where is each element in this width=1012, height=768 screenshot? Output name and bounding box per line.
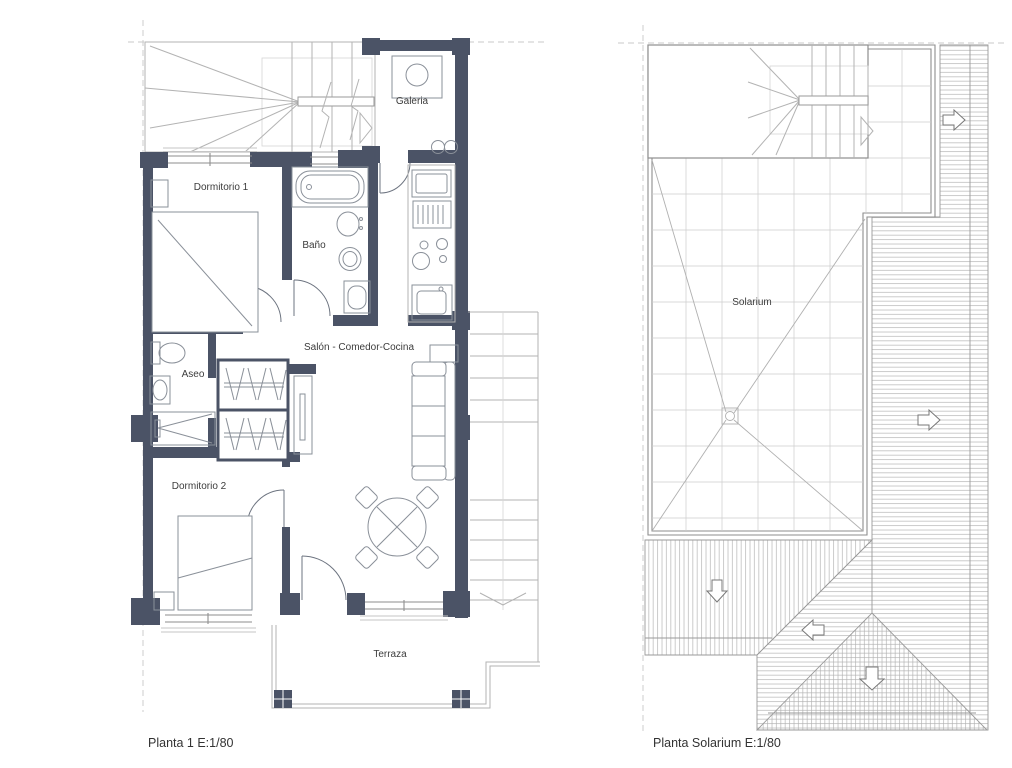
- hob: [413, 239, 448, 270]
- solarium-stairs: [648, 45, 873, 158]
- bed-dormitorio1: [151, 180, 258, 332]
- bidet: [337, 212, 359, 236]
- label-dormitorio2: Dormitorio 2: [172, 481, 227, 492]
- label-solarium: Solarium: [732, 297, 771, 308]
- aseo-fixtures: [150, 342, 215, 445]
- label-dormitorio1: Dormitorio 1: [194, 182, 249, 193]
- label-galeria: Galeria: [396, 96, 429, 107]
- oven: [413, 201, 451, 228]
- glass-partition: [294, 376, 312, 454]
- terrace: [272, 625, 540, 708]
- exterior-stairs: [468, 312, 538, 662]
- nightstand: [151, 180, 168, 207]
- plan-solarium: Solarium Planta Solarium E:1/80: [645, 45, 988, 750]
- bed-dormitorio2: [154, 516, 252, 610]
- toilet: [339, 248, 361, 271]
- aseo-toilet: [159, 343, 185, 363]
- washing-machine: [392, 56, 442, 98]
- terrace-pillar: [452, 690, 470, 708]
- dining-set: [354, 485, 439, 569]
- terrace-pillar: [274, 690, 292, 708]
- label-aseo: Aseo: [182, 369, 205, 380]
- floor-plan-svg: Galeria Dormitorio 1 Baño Aseo Salón - C…: [0, 0, 1012, 768]
- label-terraza: Terraza: [373, 649, 407, 660]
- drain-slopes: [652, 160, 865, 531]
- caption-planta1: Planta 1 E:1/80: [148, 736, 234, 750]
- label-bano: Baño: [302, 240, 326, 251]
- sofa: [412, 362, 455, 480]
- kitchen-fixtures: [408, 165, 455, 322]
- label-salon: Salón - Comedor-Cocina: [304, 342, 414, 353]
- side-table: [430, 345, 458, 362]
- stair-direction-arrow: [360, 113, 372, 143]
- floorplan-sheet: Galeria Dormitorio 1 Baño Aseo Salón - C…: [0, 0, 1012, 768]
- interior-stairs: [145, 42, 375, 152]
- caption-solarium: Planta Solarium E:1/80: [653, 736, 781, 750]
- wardrobes: [218, 360, 312, 460]
- plan-planta1: Galeria Dormitorio 1 Baño Aseo Salón - C…: [131, 38, 540, 750]
